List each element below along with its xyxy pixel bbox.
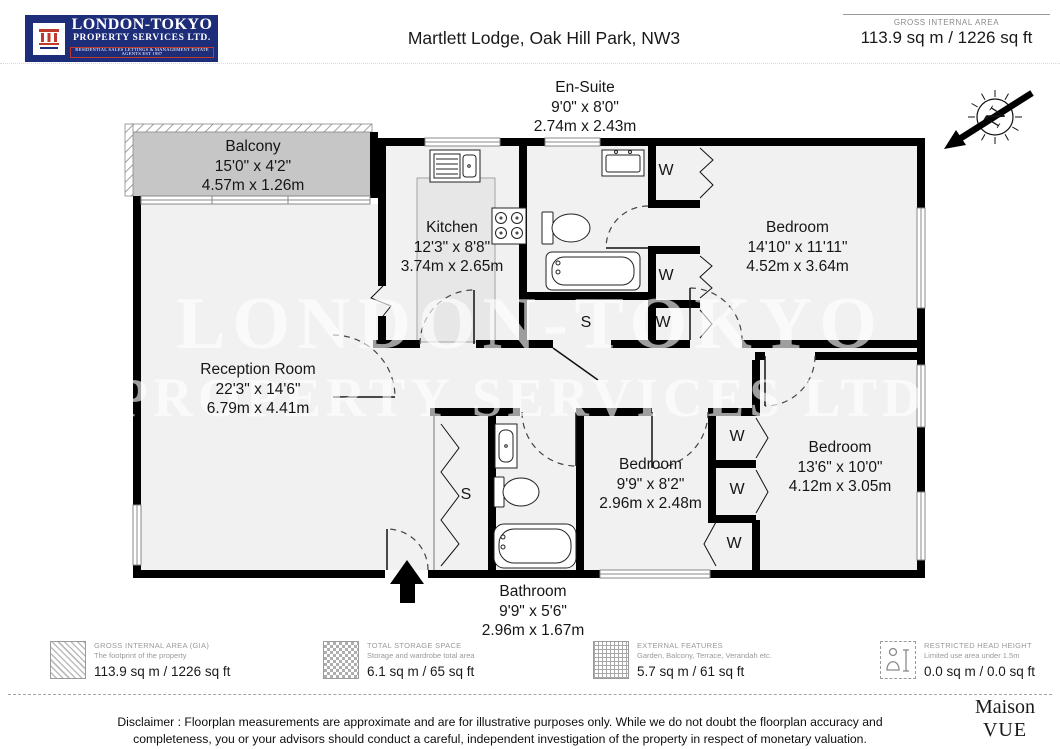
room-label-balcony: Balcony 15'0" x 4'2" 4.57m x 1.26m xyxy=(153,137,353,196)
legend-divider xyxy=(8,694,1052,695)
room-label-ensuite: En-Suite 9'0" x 8'0" 2.74m x 2.43m xyxy=(505,78,665,137)
floorplan-page: LONDON-TOKYO PROPERTY SERVICES LTD. RESI… xyxy=(0,0,1060,749)
gia-swatch-icon xyxy=(50,641,86,679)
room-label-bedroom2: Bedroom 9'9" x 8'2" 2.96m x 2.48m xyxy=(583,455,718,514)
bathroom-bath xyxy=(494,524,576,568)
legend-storage: TOTAL STORAGE SPACE Storage and wardrobe… xyxy=(323,641,475,679)
maison-vue-logo: Maison VUE xyxy=(960,696,1050,742)
wardrobe-label: W xyxy=(724,535,744,555)
bathroom-toilet xyxy=(494,477,539,507)
external-swatch-icon xyxy=(593,641,629,679)
person-icon xyxy=(883,645,913,675)
storage-label: S xyxy=(576,314,596,334)
bathroom-sink xyxy=(495,424,517,468)
ensuite-bath xyxy=(546,252,640,290)
wardrobe-label: W xyxy=(727,428,747,448)
storage-label: S xyxy=(456,486,476,506)
room-label-bedroom3: Bedroom 13'6" x 10'0" 4.12m x 3.05m xyxy=(760,438,920,497)
wardrobe-label: W xyxy=(653,314,673,334)
wardrobe-label: W xyxy=(656,162,676,182)
room-label-bathroom: Bathroom 9'9" x 5'6" 2.96m x 1.67m xyxy=(453,582,613,641)
room-label-bedroom1: Bedroom 14'10" x 11'11" 4.52m x 3.64m xyxy=(710,218,885,277)
ensuite-toilet xyxy=(542,212,590,244)
legend-head-height: RESTRICTED HEAD HEIGHT Limited use area … xyxy=(880,641,1035,679)
ensuite-sink xyxy=(602,150,644,176)
wardrobe-label: W xyxy=(727,481,747,501)
compass-icon: N xyxy=(944,90,1032,149)
storage-swatch-icon xyxy=(323,641,359,679)
person-swatch-icon xyxy=(880,641,916,679)
room-label-kitchen: Kitchen 12'3" x 8'8" 3.74m x 2.65m xyxy=(372,218,532,277)
legend-external: EXTERNAL FEATURES Garden, Balcony, Terra… xyxy=(593,641,772,679)
legend-gia: GROSS INTERNAL AREA (GIA) The footprint … xyxy=(50,641,230,679)
kitchen-sink xyxy=(430,150,480,182)
wardrobe-label: W xyxy=(656,267,676,287)
disclaimer-text: Disclaimer : Floorplan measurements are … xyxy=(110,714,890,747)
room-label-reception: Reception Room 22'3" x 14'6" 6.79m x 4.4… xyxy=(163,360,353,419)
